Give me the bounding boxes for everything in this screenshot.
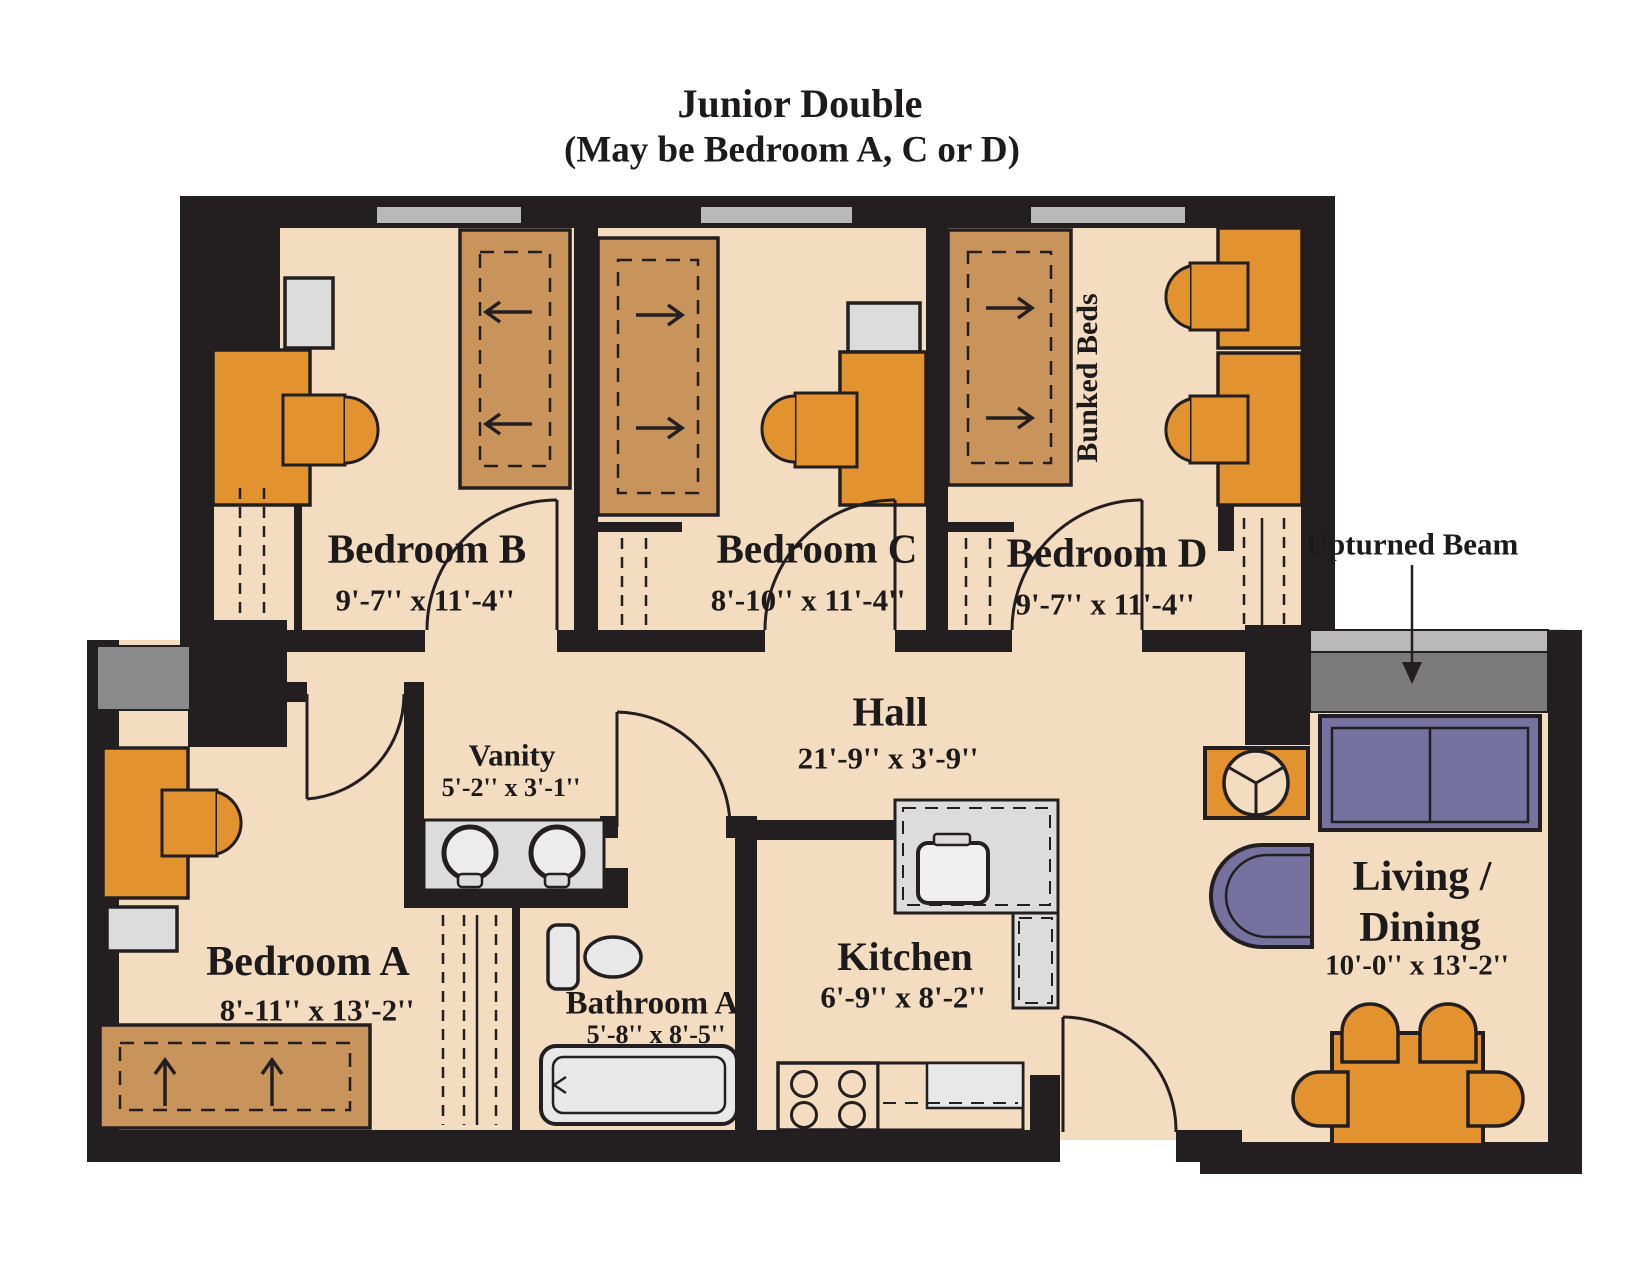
living-dining-label-2: Dining — [1359, 907, 1480, 949]
hall-dims: 21'-9'' x 3'-9'' — [798, 743, 979, 774]
bedroom-c-label: Bedroom C — [717, 529, 918, 570]
hall-label: Hall — [852, 692, 927, 733]
window-bedroom-d — [1030, 206, 1186, 224]
upturned-beam — [1310, 652, 1548, 712]
armchair — [1211, 845, 1312, 947]
bed-bedroom-d — [948, 230, 1071, 485]
vanity-sink-right — [531, 827, 583, 879]
toilet-bowl — [585, 937, 641, 977]
kitchen-sink — [918, 843, 988, 903]
window-bedroom-a — [97, 646, 190, 710]
upturned-beam-label: Upturned Beam — [1306, 529, 1519, 560]
window-bedroom-b — [376, 206, 522, 224]
bedroom-b-dims: 9'-7'' x 11'-4'' — [335, 585, 514, 616]
vanity-sink-left — [444, 827, 496, 879]
page-subtitle: (May be Bedroom A, C or D) — [564, 132, 1020, 169]
living-dining-dims: 10'-0'' x 13'-2'' — [1325, 952, 1509, 981]
bedroom-a-label: Bedroom A — [206, 941, 409, 983]
bed-bedroom-a — [100, 1025, 370, 1128]
bathroom-a-label: Bathroom A — [566, 988, 739, 1021]
bed-bedroom-b — [460, 230, 570, 488]
bedroom-d-dims: 9'-7'' x 11'-4'' — [1015, 589, 1194, 620]
kitchen-label: Kitchen — [837, 937, 973, 977]
dining-chair — [1468, 1072, 1523, 1126]
floor-plan-page: Junior Double (May be Bedroom A, C or D)… — [0, 0, 1650, 1275]
bedroom-b-label: Bedroom B — [328, 529, 527, 570]
window-living — [1310, 630, 1548, 652]
dining-chair — [1420, 1004, 1476, 1062]
dresser-bedroom-b — [285, 278, 333, 348]
dining-chair — [1342, 1004, 1398, 1062]
dresser-bedroom-a — [107, 907, 177, 951]
bedroom-d-label: Bedroom D — [1007, 533, 1208, 574]
bedroom-c-dims: 8'-10'' x 11'-4'' — [711, 585, 906, 616]
vanity-fixtures — [424, 820, 604, 890]
vanity-label: Vanity — [469, 740, 556, 771]
bathroom-a-dims: 5'-8'' x 8'-5'' — [587, 1022, 726, 1048]
side-table — [1205, 748, 1308, 818]
bed-bedroom-c — [598, 238, 718, 515]
sofa — [1320, 716, 1540, 830]
dining-chair — [1293, 1072, 1348, 1126]
floor-plan-drawing — [0, 0, 1650, 1275]
bedroom-a-dims: 8'-11'' x 13'-2'' — [220, 995, 415, 1026]
dresser-bedroom-c — [848, 303, 920, 352]
kitchen-dims: 6'-9'' x 8'-2'' — [820, 982, 985, 1013]
living-dining-label-1: Living / — [1353, 856, 1492, 898]
vanity-dims: 5'-2'' x 3'-1'' — [442, 775, 581, 801]
upturned-beam-arrow — [1402, 565, 1422, 684]
window-bedroom-c — [700, 206, 853, 224]
toilet-tank — [548, 925, 578, 989]
page-title: Junior Double — [678, 84, 923, 124]
bunked-beds-label: Bunked Beds — [1073, 293, 1103, 462]
